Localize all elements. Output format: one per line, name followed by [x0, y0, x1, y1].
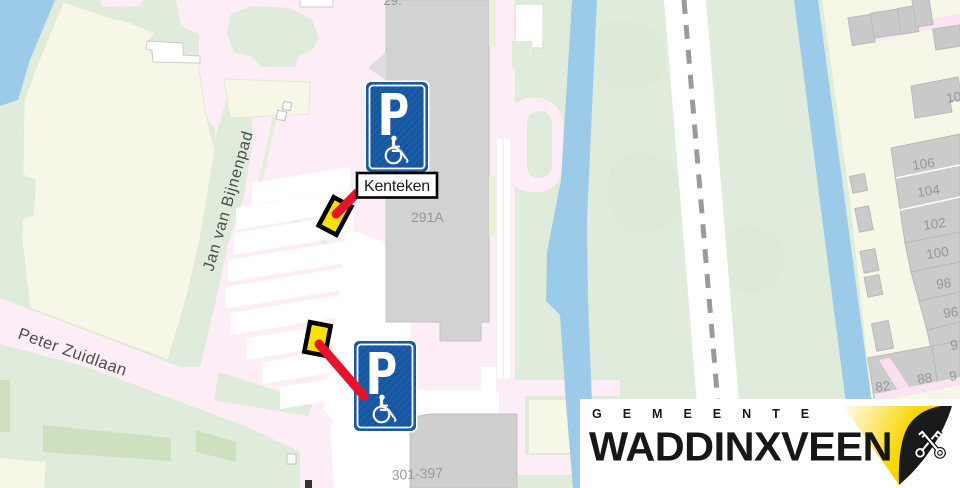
svg-text:10: 10	[945, 89, 960, 106]
svg-text:'29.: '29.	[381, 0, 402, 8]
svg-text:98: 98	[935, 275, 952, 292]
svg-text:100: 100	[925, 244, 949, 262]
svg-text:96: 96	[942, 304, 959, 321]
svg-text:82: 82	[874, 378, 891, 395]
svg-text:GEMEENTE: GEMEENTE	[592, 407, 830, 421]
svg-text:Kenteken: Kenteken	[364, 178, 430, 195]
svg-text:WADDINXVEEN: WADDINXVEEN	[589, 424, 892, 470]
svg-text:106: 106	[911, 155, 935, 173]
svg-text:88: 88	[916, 370, 933, 387]
svg-text:102: 102	[922, 215, 946, 233]
svg-text:301-397: 301-397	[391, 464, 443, 483]
svg-text:291A: 291A	[411, 209, 444, 225]
svg-text:104: 104	[916, 182, 941, 200]
